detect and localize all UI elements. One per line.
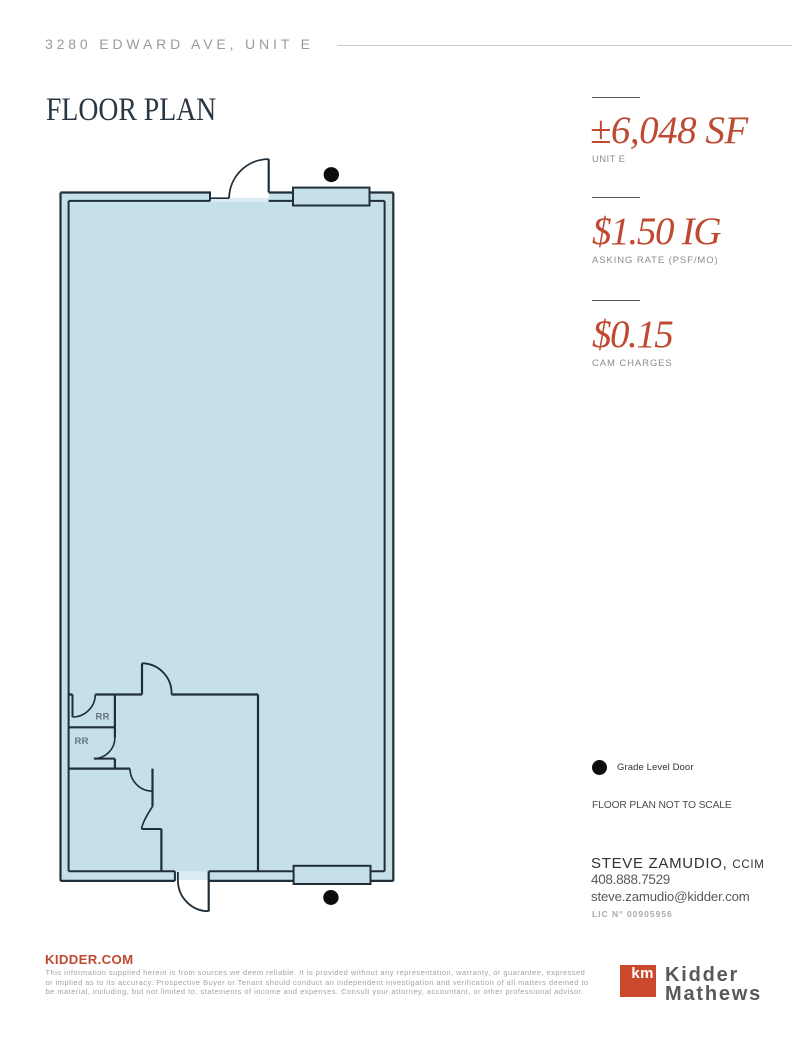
svg-text:RR: RR: [75, 736, 89, 747]
svg-text:RR: RR: [96, 712, 110, 723]
